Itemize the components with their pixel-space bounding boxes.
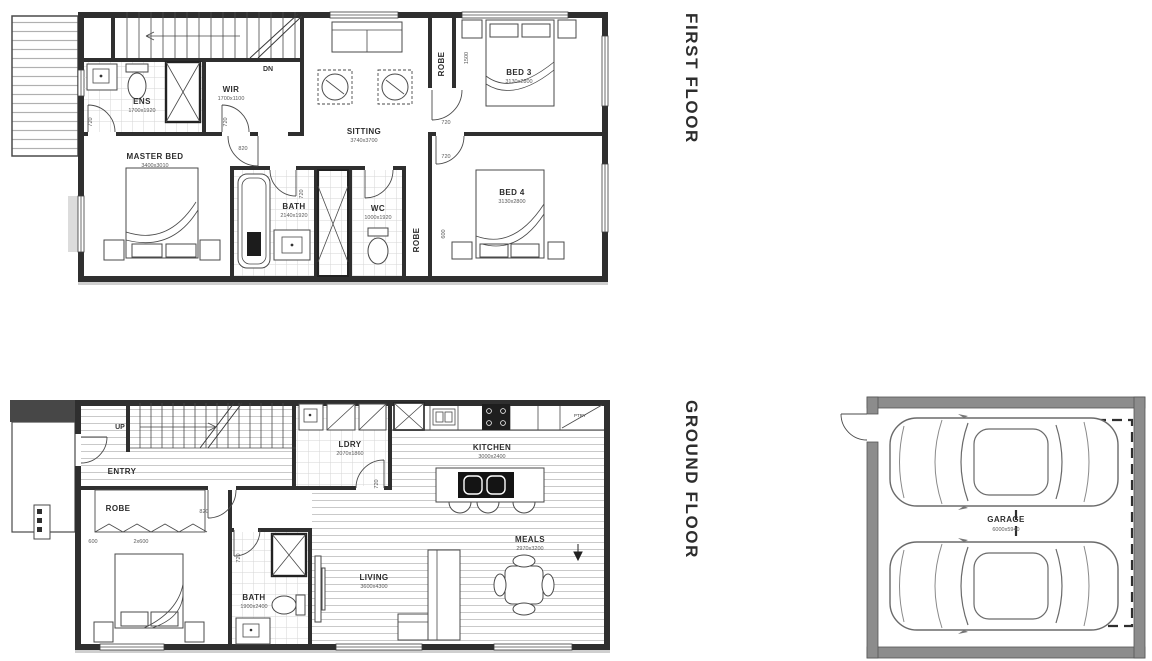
dim-720: 720 <box>441 120 450 126</box>
window-sill <box>68 196 78 252</box>
bedside-table <box>200 240 220 260</box>
dim-600: 600 <box>441 229 447 238</box>
dim-720: 720 <box>441 154 450 160</box>
dim-600: 600 <box>88 539 97 545</box>
garage-plan: GARAGE 6000x5940 <box>841 397 1145 658</box>
garage-entry-door <box>841 414 867 440</box>
wir-room: WIR 1700x1100 <box>218 85 245 102</box>
floorplan-sheet: DN ENS 1700x1920 WIR 1700x1100 <box>0 0 1152 661</box>
wc-dim: 1000x1920 <box>364 215 391 221</box>
window <box>494 644 572 650</box>
window <box>336 644 422 650</box>
bathtub <box>238 174 270 268</box>
bed3-door <box>432 90 462 120</box>
bedside-table <box>558 20 576 38</box>
armchair <box>378 70 412 104</box>
stools <box>449 502 535 513</box>
bed2-room: BED 2 3060x3020 <box>94 554 204 642</box>
kitchen-dim: 3000x2400 <box>478 454 505 460</box>
garage-dim: 6000x5940 <box>992 527 1019 533</box>
vanity <box>274 230 310 260</box>
meals-dim: 2970x3200 <box>516 546 543 552</box>
bedside-table <box>185 622 204 642</box>
stairs-up-label: UP <box>115 424 125 431</box>
wir-label: WIR <box>223 85 240 94</box>
bed4-room: BED 4 3130x2800 <box>452 170 564 259</box>
window <box>330 12 398 18</box>
balcony <box>12 16 78 252</box>
ens-dim: 1700x1920 <box>128 108 155 114</box>
bath-label: BATH <box>242 593 265 602</box>
bed4-dim: 3130x2800 <box>498 199 525 205</box>
ldry-label: LDRY <box>338 440 361 449</box>
sofa <box>332 22 402 52</box>
sitting-dim: 3740x3700 <box>350 138 377 144</box>
bedside-table <box>452 242 472 259</box>
robe-label: ROBE <box>106 504 131 513</box>
bath-dim: 2140x1920 <box>280 213 307 219</box>
bifold-doors <box>95 524 207 532</box>
shower <box>318 170 348 276</box>
island-bench <box>436 468 544 502</box>
stairs-dn-label: DN <box>263 66 273 73</box>
dim-720: 720 <box>299 189 305 198</box>
living-dim: 3600x4300 <box>360 584 387 590</box>
stair-arrow <box>146 32 240 40</box>
bath-label: BATH <box>282 202 305 211</box>
ptry-label: PTRY <box>574 413 586 418</box>
car-top-view <box>890 538 1118 634</box>
wc-room: WC 1000x1920 <box>352 170 402 276</box>
entry-label: ENTRY <box>108 467 137 476</box>
dim-720: 720 <box>223 117 229 126</box>
shower <box>166 62 200 122</box>
ldry-room: LDRY 2070x1860 720 <box>296 404 388 489</box>
dim-2x600: 2x600 <box>134 539 149 545</box>
meals-label: MEALS <box>515 535 545 544</box>
ground-floor-title: GROUND FLOOR <box>682 400 701 559</box>
master-bed-room: MASTER BED 3400x3010 <box>104 152 220 260</box>
window <box>602 164 608 232</box>
bed <box>115 554 183 628</box>
dim-820: 820 <box>199 509 208 515</box>
wir-dim: 1700x1100 <box>218 96 245 102</box>
window <box>78 70 84 96</box>
window <box>78 196 84 252</box>
window <box>462 12 568 18</box>
ens-label: ENS <box>133 97 151 106</box>
ground-floor-plan: UP ENTRY ROBE 600 2x600 820 BED 2 3060x3… <box>10 400 610 653</box>
cupboard <box>327 404 355 430</box>
dim-720: 720 <box>374 479 380 488</box>
window <box>602 36 608 106</box>
wc-label: WC <box>371 204 385 213</box>
dim-720: 720 <box>236 553 242 562</box>
living-label: LIVING <box>359 573 388 582</box>
bath-dim: 1900x2400 <box>240 604 267 610</box>
bedside-table <box>104 240 124 260</box>
bed <box>476 170 544 258</box>
car-top-view <box>890 414 1118 510</box>
ens-room: ENS 1700x1920 <box>84 62 202 132</box>
robe-label: ROBE <box>412 227 421 252</box>
bedside-table <box>462 20 482 38</box>
first-floor-title: FIRST FLOOR <box>682 13 701 144</box>
bed <box>486 20 554 106</box>
armchair <box>318 70 352 104</box>
sitting-label: SITTING <box>347 127 381 136</box>
kitchen-label: KITCHEN <box>473 443 511 452</box>
window <box>100 644 164 650</box>
ldry-dim: 2070x1860 <box>336 451 363 457</box>
vanity <box>236 618 270 644</box>
porch <box>10 400 75 539</box>
bed3-room: BED 3 3130x2800 <box>462 20 576 106</box>
meter-box <box>34 505 50 539</box>
bed3-dim: 3130x2800 <box>505 79 532 85</box>
bedside-table <box>94 622 113 642</box>
laundry-trough <box>299 404 323 430</box>
bed <box>126 168 198 258</box>
dim-1500: 1500 <box>464 52 470 64</box>
fridge-space <box>394 403 424 430</box>
bedside-table <box>548 242 564 259</box>
master-bed-label: MASTER BED <box>127 152 184 161</box>
toilet <box>272 595 305 615</box>
robe: ROBE 600 2x600 820 <box>88 490 236 545</box>
cooktop <box>482 404 510 430</box>
dim-720: 720 <box>88 117 94 126</box>
dim-820: 820 <box>238 146 247 152</box>
bed4-label: BED 4 <box>499 188 525 197</box>
toilet <box>126 64 148 99</box>
bath-room: 720 BATH 1900x2400 <box>232 530 308 644</box>
sitting-room: SITTING 3740x3700 <box>318 22 412 144</box>
first-floor-plan: DN ENS 1700x1920 WIR 1700x1100 <box>12 12 608 285</box>
toilet <box>368 228 388 264</box>
bed3-label: BED 3 <box>506 68 532 77</box>
bath-room: BATH 2140x1920 <box>234 170 314 276</box>
vanity <box>87 64 117 90</box>
garage-label: GARAGE <box>987 515 1025 524</box>
cupboard <box>359 404 386 430</box>
robe-label: ROBE <box>437 51 446 76</box>
shower <box>272 534 306 576</box>
